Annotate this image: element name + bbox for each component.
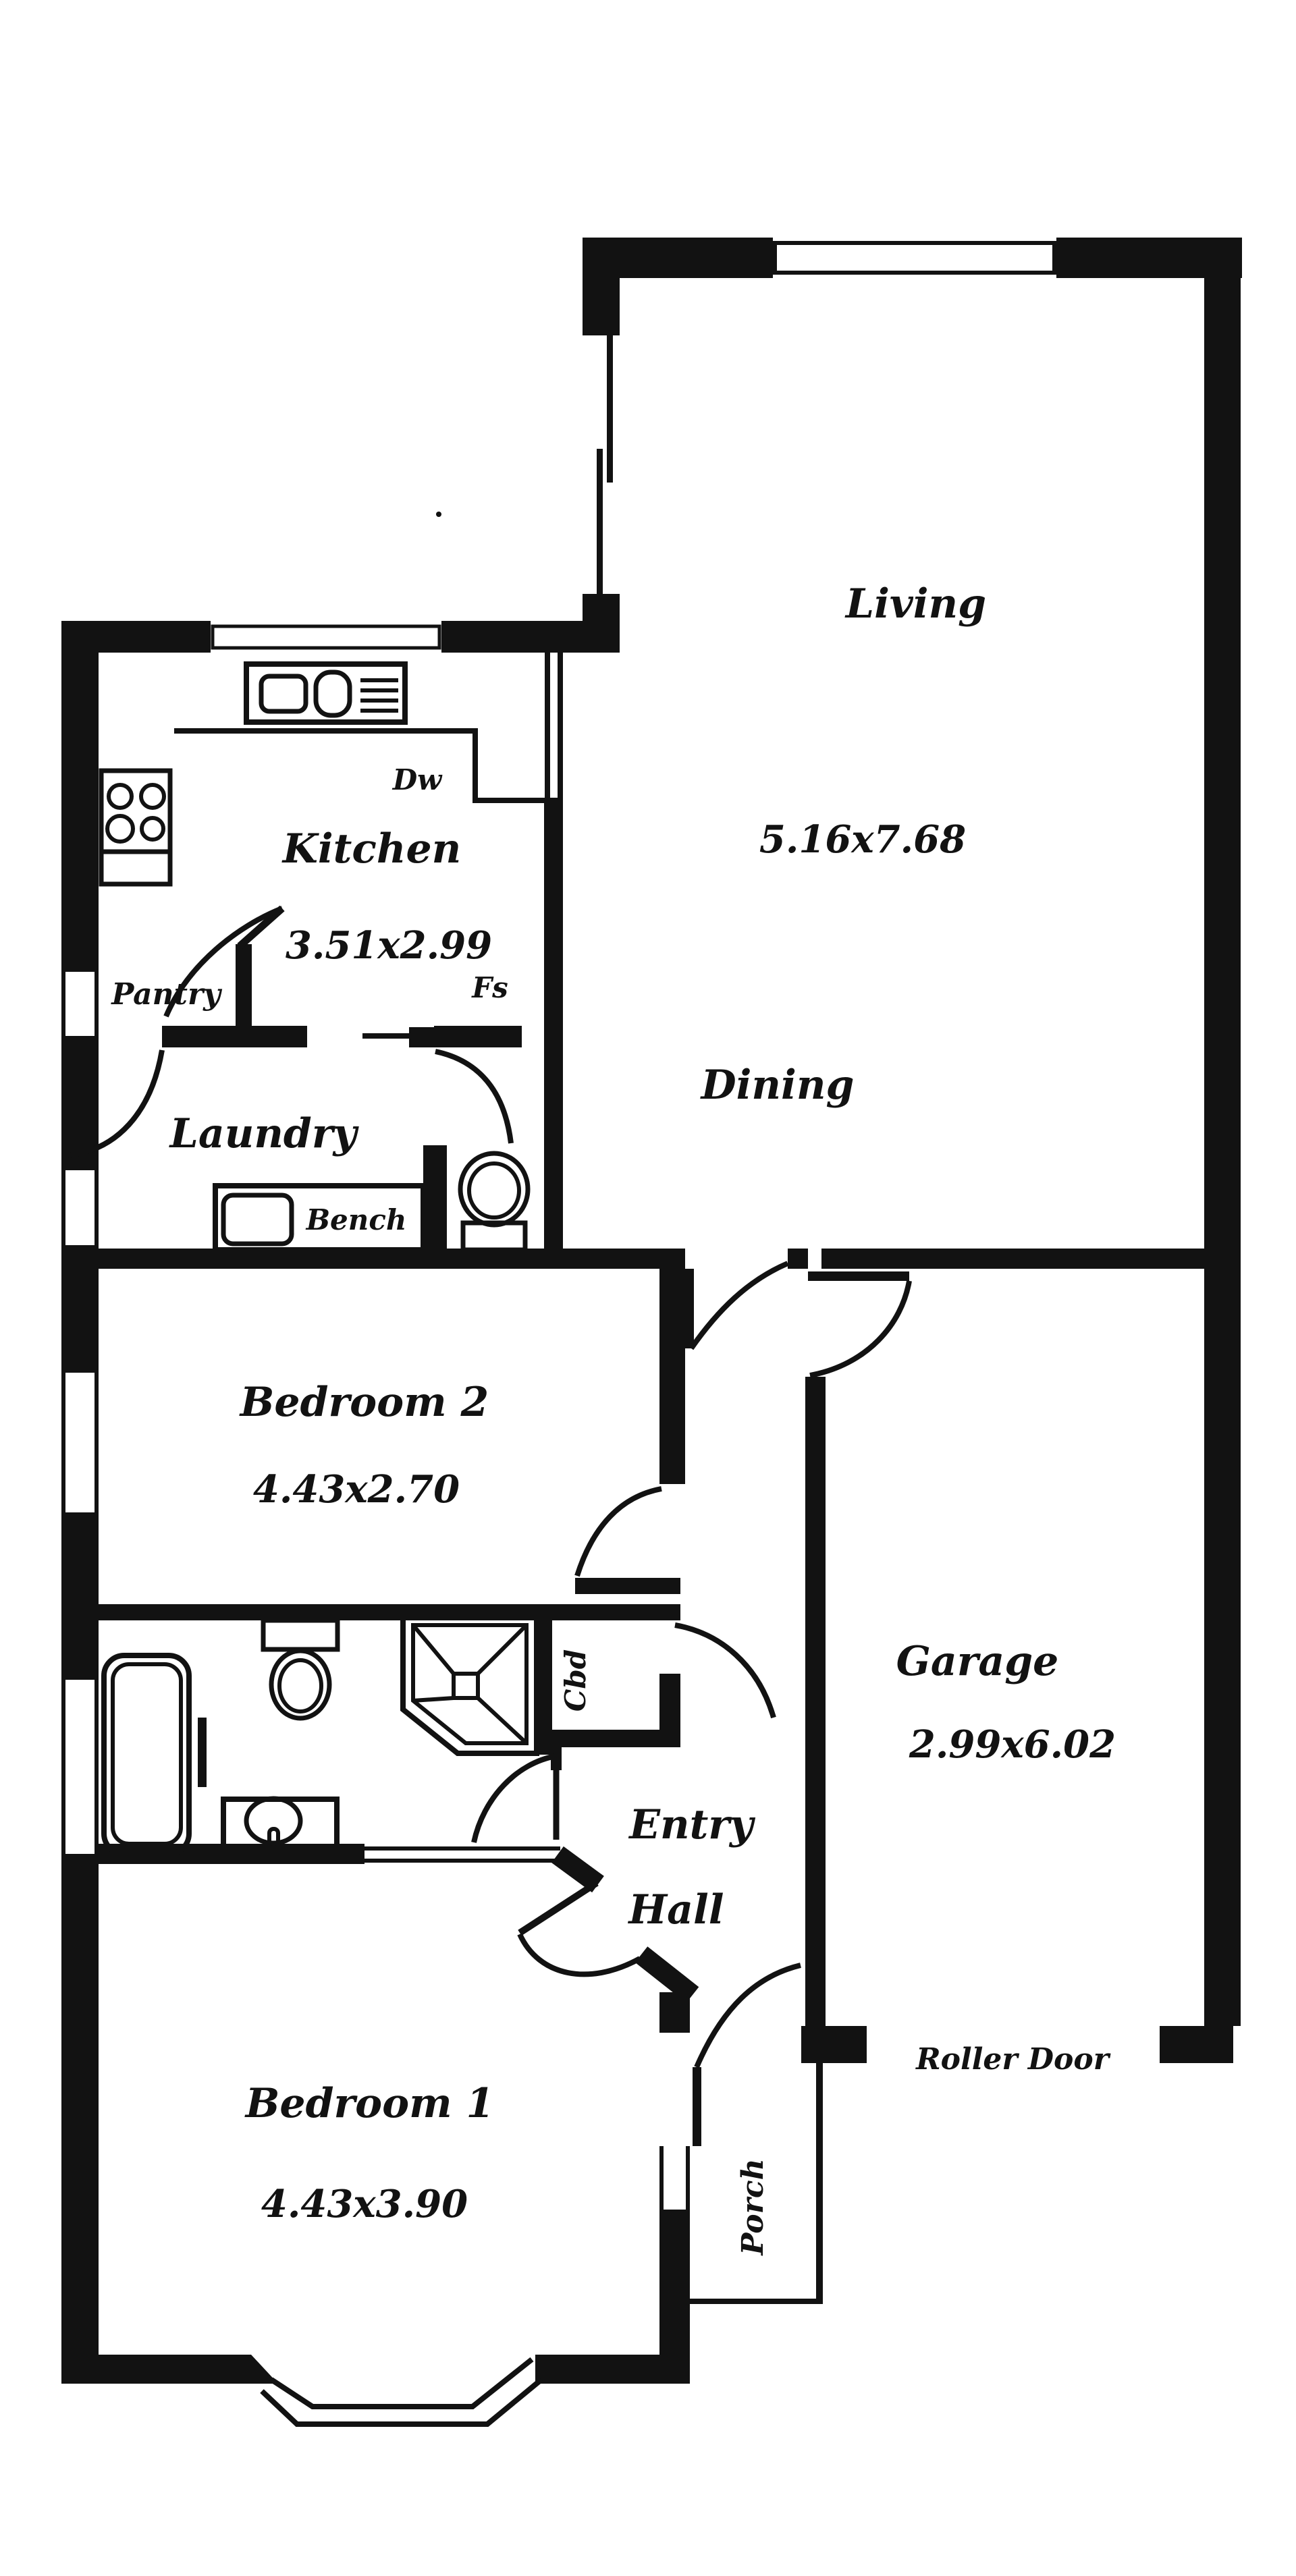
fixture-label-cupboard: Cbd [559, 1649, 592, 1711]
room-dims-bedroom1: 4.43x3.90 [261, 2182, 468, 2226]
door-arc [474, 1756, 556, 1842]
door-arc [810, 1281, 909, 1375]
wall [544, 803, 563, 1269]
floorplan-drawing: Living 5.16x7.68 Dining Kitchen 3.51x2.9… [0, 0, 1296, 2576]
room-label-bedroom2: Bedroom 2 [239, 1379, 489, 1426]
door-arc [675, 1625, 774, 1718]
wall [362, 1033, 416, 1039]
wall [1204, 238, 1241, 2026]
shower [403, 1615, 537, 1753]
room-label-living: Living [844, 580, 986, 628]
window [61, 972, 99, 1036]
room-dims-kitchen: 3.51x2.99 [286, 923, 492, 968]
kitchen-sink [246, 664, 405, 722]
wall [641, 1954, 693, 1995]
window [61, 1680, 99, 1854]
door-arc [691, 1263, 788, 1348]
door-leaf [575, 1578, 680, 1594]
room-label-porch: Porch [736, 2158, 770, 2256]
wall [558, 653, 563, 803]
wall [659, 2210, 690, 2355]
wall [659, 1992, 690, 2033]
wall [805, 1377, 826, 2026]
room-label-pantry: Pantry [110, 977, 223, 1012]
window [213, 626, 439, 648]
room-label-hall: Hall [627, 1886, 724, 1934]
room-dims-bedroom2: 4.43x2.70 [253, 1467, 460, 1512]
wall [659, 1269, 685, 1484]
toilet [460, 1153, 528, 1250]
wall [788, 1249, 808, 1269]
cooktop [101, 771, 170, 884]
wall [552, 1730, 680, 1747]
room-label-kitchen: Kitchen [281, 825, 462, 873]
door-leaf [808, 1271, 909, 1281]
room-label-entry: Entry [628, 1801, 756, 1848]
fixture-label-dishwasher: Dw [392, 763, 443, 796]
wall [659, 1674, 680, 1730]
door-arc [697, 1965, 801, 2067]
fixture-label-fridge-space: Fs [471, 971, 508, 1004]
wall [364, 1859, 560, 1863]
wall [801, 2026, 867, 2063]
bay-window [262, 2359, 541, 2424]
window [61, 1170, 99, 1245]
wall [583, 238, 620, 335]
fixture-label-bench: Bench [306, 1203, 407, 1236]
wall [821, 1249, 1204, 1269]
room-label-laundry: Laundry [169, 1110, 360, 1157]
wall [162, 1026, 307, 1047]
floorplan-page: Living 5.16x7.68 Dining Kitchen 3.51x2.9… [0, 0, 1296, 2576]
wall [236, 944, 252, 1026]
door-arc [435, 1051, 511, 1143]
labels: Living 5.16x7.68 Dining Kitchen 3.51x2.9… [110, 580, 1116, 2257]
wall [1160, 2026, 1233, 2063]
wall [434, 1026, 522, 1047]
room-label-bedroom1: Bedroom 1 [244, 2080, 495, 2127]
room-label-garage: Garage [896, 1638, 1059, 1685]
wall [364, 1846, 560, 1851]
room-dims-garage: 2.99x6.02 [909, 1722, 1116, 1767]
wall [198, 1718, 207, 1787]
room-label-dining: Dining [700, 1062, 855, 1109]
wall [99, 1604, 680, 1620]
door-leaf [693, 2067, 701, 2146]
window [775, 243, 1054, 273]
wall [535, 2355, 690, 2384]
window [597, 449, 603, 594]
windows [61, 238, 1056, 2424]
wall [61, 2355, 251, 2384]
bathtub [104, 1655, 189, 1854]
door-arc [520, 1934, 640, 1974]
door-arc [577, 1489, 661, 1576]
wall [558, 1855, 598, 1884]
window [659, 2146, 690, 2210]
window [61, 1373, 99, 1512]
room-dims-living: 5.16x7.68 [759, 817, 966, 862]
vanity-basin [223, 1799, 337, 1851]
toilet [263, 1620, 337, 1718]
scan-mark [436, 512, 441, 517]
window [607, 335, 613, 483]
kitchen-counter [174, 731, 562, 800]
wall [409, 1027, 434, 1047]
wall [423, 1145, 447, 1251]
door-leaf [685, 1269, 694, 1348]
fixture-label-roller-door: Roller Door [915, 2042, 1111, 2077]
wall [545, 653, 550, 803]
door-leaf [520, 1883, 597, 1933]
